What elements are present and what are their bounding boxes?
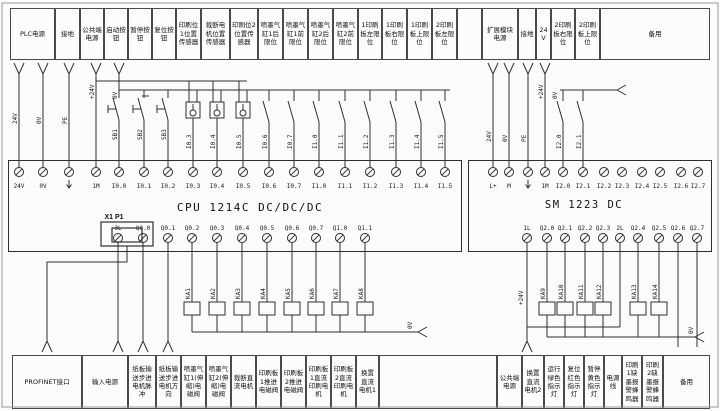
wire-label: I0.7: [287, 134, 294, 149]
relay-coil-icon: [184, 302, 200, 315]
switch-contact: [288, 101, 294, 122]
bottom-label-box: 换置直流电机1: [356, 355, 379, 409]
relay-coil-icon: [234, 302, 250, 315]
switch-contact: [439, 101, 445, 122]
plc-wiring-diagram: PLC电源接地公共端电源启动按钮暂停按钮复位按钮印刷位1位置传感器裁断电机位置传…: [0, 0, 720, 411]
input-description-row: PLC电源接地公共端电源启动按钮暂停按钮复位按钮印刷位1位置传感器裁断电机位置传…: [0, 8, 720, 60]
v-arrow-icon: [91, 63, 101, 74]
bottom-label-box: 运行绿色指示灯: [544, 355, 564, 409]
v-arrow-icon: [113, 341, 123, 352]
proximity-sensor-icon: [190, 110, 196, 116]
relay-label: KA5: [285, 288, 292, 299]
wire-label: I1.2: [363, 134, 370, 149]
relay-label: KA12: [596, 284, 603, 299]
relay-coil-icon: [357, 302, 373, 315]
switch-contact: [364, 101, 370, 122]
button-contact: [162, 98, 168, 120]
relay-coil-icon: [630, 302, 646, 315]
wire-label: 24V: [12, 113, 19, 124]
fork-arrow-icon: [617, 90, 626, 95]
proximity-sensor-icon: [210, 102, 224, 118]
relay-label: KA8: [358, 288, 365, 299]
wire-label: SB1: [112, 129, 119, 140]
wire-label: SB2: [137, 129, 144, 140]
top-label-box: 2印刷板右限位: [551, 8, 575, 60]
wire-label: I2.0: [556, 134, 563, 149]
relay-label: KA11: [578, 284, 585, 299]
bottom-label-box: 换置直流电机2: [522, 355, 544, 409]
output-description-row: PROFINET接口输入电源纸板输送步进电机脉冲纸板输送步进电机方向喷墨气缸1(…: [0, 355, 720, 409]
relay-label: KA7: [333, 288, 340, 299]
top-label-box: 1印刷板左限位: [358, 8, 382, 60]
relay-label: KA4: [260, 288, 267, 299]
relay-label: KA10: [558, 284, 565, 299]
bottom-label-box: 裁断直流电机: [231, 355, 256, 409]
wire-label: I1.1: [338, 134, 345, 149]
wire-label: +24V: [538, 84, 545, 99]
fork-arrow-icon: [418, 327, 427, 332]
top-label-box: 启动按钮: [104, 8, 128, 60]
bottom-label-box: 输入电源: [82, 355, 128, 409]
fork-arrow-icon: [617, 85, 626, 90]
switch-contact: [415, 101, 421, 122]
wire-label: 0V: [36, 116, 43, 124]
v-arrow-icon: [540, 63, 550, 74]
top-label-box: 裁断电机位置传感器: [201, 8, 230, 60]
top-label-box: 24V: [536, 8, 551, 60]
top-label-box: 2印刷板左限位: [432, 8, 457, 60]
top-label-box: 备用: [600, 8, 710, 60]
wire-label: 0V: [688, 326, 695, 334]
wire-label: SB3: [161, 129, 168, 140]
sm-title: SM 1223 DC: [519, 199, 649, 211]
bottom-label-box: 印刷板2推进电磁阀: [281, 355, 306, 409]
bottom-label-box: PROFINET接口: [12, 355, 82, 409]
bottom-label-box: 喷墨气缸2(伸缩)电磁阀: [206, 355, 231, 409]
wire-label: PE: [521, 134, 528, 142]
v-arrow-icon: [64, 63, 74, 74]
top-label-box: PLC电源: [10, 8, 55, 60]
top-label-box: 印刷位1位置传感器: [176, 8, 201, 60]
wire-label: I1.3: [389, 134, 396, 149]
relay-coil-icon: [209, 302, 225, 315]
wire-label: 0V: [552, 91, 559, 99]
proximity-sensor-icon: [236, 102, 250, 118]
relay-coil-icon: [577, 302, 593, 315]
bottom-label-box: 复位红色指示灯: [564, 355, 584, 409]
bottom-label-box: 暂停黄色指示灯: [584, 355, 604, 409]
wire-label: I0.5: [236, 134, 243, 149]
profinet-wire: [47, 246, 127, 341]
relay-coil-icon: [539, 302, 555, 315]
top-label-box: 2印刷板上限位: [575, 8, 600, 60]
bottom-label-box: 印刷1缺墨报警蜂鸣器: [622, 355, 642, 409]
button-contact: [113, 98, 119, 120]
v-arrow-icon: [522, 341, 532, 352]
top-label-box: 接地: [55, 8, 80, 60]
relay-label: KA13: [631, 284, 638, 299]
wire-label: 24V: [486, 131, 493, 142]
wire-label: I0.3: [186, 134, 193, 149]
v-arrow-icon: [38, 63, 48, 74]
top-label-box: 暂停按钮: [128, 8, 152, 60]
wire-label: I0.4: [210, 134, 217, 149]
top-label-box: [457, 8, 482, 60]
relay-coil-icon: [651, 302, 667, 315]
switch-contact: [390, 101, 396, 122]
wire-label: I1.5: [438, 134, 445, 149]
v-arrow-icon: [42, 341, 52, 352]
wire-label: I0.6: [262, 134, 269, 149]
relay-coil-icon: [259, 302, 275, 315]
wire-label: PE: [62, 116, 69, 124]
v-arrow-icon: [523, 63, 533, 74]
proximity-sensor-icon: [240, 110, 246, 116]
v-arrow-icon: [14, 63, 24, 74]
bottom-label-box: 电源线: [604, 355, 622, 409]
bottom-label-box: 印刷2缺墨报警蜂鸣器: [642, 355, 663, 409]
bottom-label-box: 印刷板2直流印刷电机: [331, 355, 356, 409]
top-label-box: 印刷位2位置传感器: [230, 8, 258, 60]
bottom-label-box: 喷墨气缸1(伸缩)电磁阀: [181, 355, 206, 409]
switch-contact: [339, 101, 345, 122]
top-label-box: 喷墨气缸1前限位: [283, 8, 308, 60]
bottom-label-box: [379, 355, 497, 409]
top-label-box: 喷墨气缸2后限位: [308, 8, 333, 60]
wire-label: I1.0: [312, 134, 319, 149]
relay-label: KA3: [235, 288, 242, 299]
relay-label: KA6: [309, 288, 316, 299]
fork-arrow-icon: [418, 332, 427, 337]
bottom-label-box: 纸板输送步进电机方向: [156, 355, 181, 409]
v-arrow-icon: [488, 63, 498, 74]
wire-label: 0V: [502, 134, 509, 142]
top-label-box: 1印刷板右限位: [382, 8, 407, 60]
bottom-label-box: 纸板输送步进电机脉冲: [128, 355, 156, 409]
top-label-box: 公共端电源: [80, 8, 104, 60]
relay-coil-icon: [595, 302, 611, 315]
v-arrow-icon: [504, 63, 514, 74]
v-arrow-icon: [163, 341, 173, 352]
bottom-label-box: 备用: [663, 355, 710, 409]
v-arrow-icon: [138, 341, 148, 352]
switch-contact: [577, 101, 583, 122]
switch-contact: [263, 101, 269, 122]
proximity-sensor-icon: [186, 102, 200, 118]
bottom-label-box: 印刷板1直流印刷电机: [306, 355, 331, 409]
v-arrow-icon: [114, 63, 124, 74]
cpu-title: CPU 1214C DC/DC/DC: [160, 201, 340, 214]
wire-label: +24V: [89, 84, 96, 99]
relay-label: KA14: [652, 284, 659, 299]
relay-label: KA9: [540, 288, 547, 299]
fork-arrow-icon: [695, 332, 704, 337]
relay-label: KA1: [185, 288, 192, 299]
bottom-label-box: 印刷板1推进电磁阀: [256, 355, 281, 409]
top-label-box: 喷墨气缸1后限位: [258, 8, 283, 60]
fork-arrow-icon: [695, 337, 704, 342]
top-label-box: 1印刷板上限位: [407, 8, 432, 60]
top-label-box: 接地: [518, 8, 536, 60]
relay-coil-icon: [557, 302, 573, 315]
wire-label: I2.1: [576, 134, 583, 149]
wire-label: I1.4: [414, 134, 421, 149]
top-label-box: 喷墨气缸2前限位: [333, 8, 358, 60]
relay-coil-icon: [332, 302, 348, 315]
switch-contact: [313, 101, 319, 122]
button-contact: [138, 98, 144, 120]
switch-contact: [557, 101, 563, 122]
top-label-box: 扩展模块电源: [482, 8, 518, 60]
proximity-sensor-icon: [214, 110, 220, 116]
relay-coil-icon: [308, 302, 324, 315]
wire-label: 0V: [112, 91, 119, 99]
top-label-box: 复位按钮: [152, 8, 176, 60]
wire-label: 0V: [407, 321, 414, 329]
relay-label: KA2: [210, 288, 217, 299]
bottom-label-box: 公共端电源: [497, 355, 522, 409]
wire-label: +24V: [518, 290, 525, 305]
relay-coil-icon: [284, 302, 300, 315]
